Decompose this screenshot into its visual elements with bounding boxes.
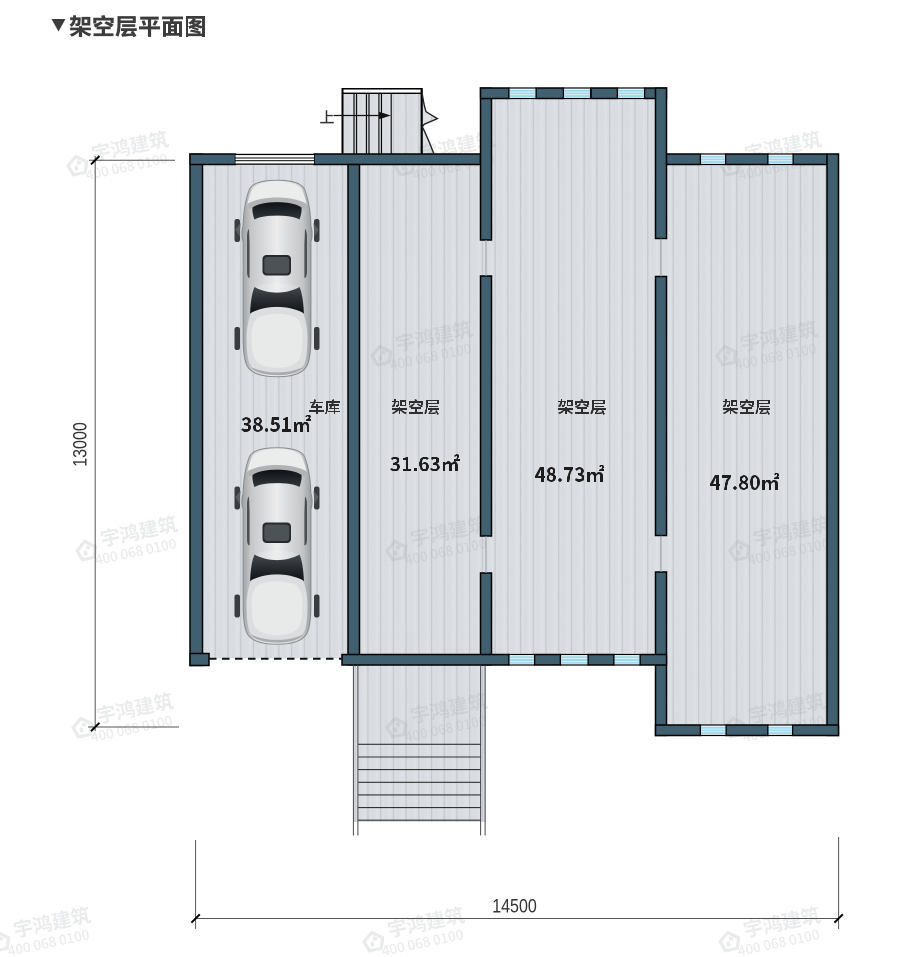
svg-text:14500: 14500	[492, 895, 537, 917]
svg-text:13000: 13000	[70, 422, 92, 467]
